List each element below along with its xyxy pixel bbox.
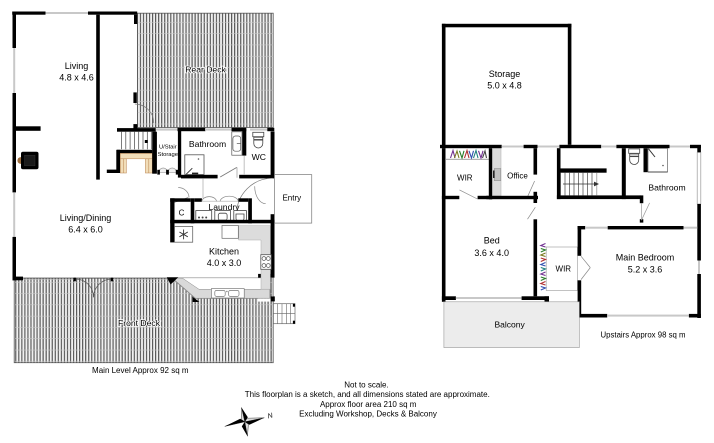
svg-text:Front Deck: Front Deck (118, 318, 161, 328)
svg-text:Excluding Workshop, Decks & Ba: Excluding Workshop, Decks & Balcony (299, 410, 437, 419)
svg-text:Office: Office (507, 172, 528, 181)
svg-text:Balcony: Balcony (494, 320, 525, 330)
svg-text:Kitchen: Kitchen (209, 247, 239, 257)
svg-text:4.8 x 4.6: 4.8 x 4.6 (59, 73, 94, 83)
svg-text:Bathroom: Bathroom (648, 183, 685, 193)
svg-text:Not to scale.: Not to scale. (344, 380, 388, 389)
svg-text:WC: WC (252, 152, 266, 162)
svg-text:Bed: Bed (484, 236, 500, 246)
svg-text:Upstairs Approx 98 sq m: Upstairs Approx 98 sq m (601, 331, 686, 340)
svg-text:Main Level Approx 92 sq m: Main Level Approx 92 sq m (92, 366, 189, 375)
svg-text:5.2 x 3.6: 5.2 x 3.6 (628, 265, 663, 275)
svg-text:Rear Deck: Rear Deck (185, 65, 226, 75)
svg-text:3.6 x 4.0: 3.6 x 4.0 (474, 248, 509, 258)
svg-text:6.4 x 6.0: 6.4 x 6.0 (68, 225, 103, 235)
svg-text:5.0 x 4.8: 5.0 x 4.8 (487, 81, 522, 91)
svg-text:WIR: WIR (457, 174, 473, 183)
svg-text:WIR: WIR (556, 265, 572, 274)
svg-text:Main Bedroom: Main Bedroom (616, 253, 675, 263)
svg-text:Living/Dining: Living/Dining (60, 213, 112, 223)
svg-text:Bathroom: Bathroom (189, 139, 226, 149)
svg-text:Storage: Storage (489, 69, 521, 79)
svg-text:4.0 x 3.0: 4.0 x 3.0 (207, 258, 242, 268)
svg-text:Entry: Entry (282, 194, 301, 203)
svg-text:This floorplan is a sketch, an: This floorplan is a sketch, and all dime… (245, 390, 490, 399)
svg-text:U/Stair: U/Stair (159, 145, 177, 151)
svg-text:Living: Living (65, 61, 89, 71)
svg-text:C: C (179, 209, 185, 218)
svg-text:Storage: Storage (158, 152, 178, 158)
svg-text:Approx floor area 210 sq m: Approx floor area 210 sq m (320, 400, 417, 409)
